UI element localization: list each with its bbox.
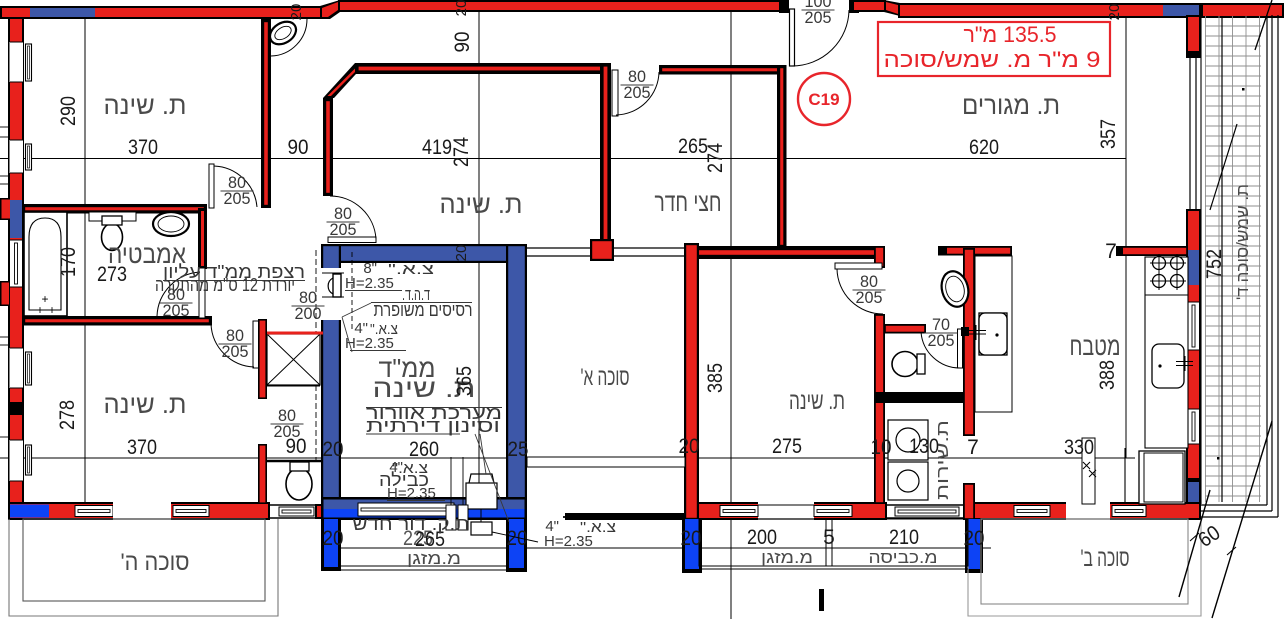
svg-text:620: 620: [969, 136, 999, 159]
svg-text:ת.שירות: ת.שירות: [933, 420, 952, 500]
svg-text:ת.ק. דור חדש: ת.ק. דור חדש: [353, 514, 470, 534]
svg-text:צ.א.": צ.א.": [388, 261, 434, 278]
svg-text:מ.מזגן: מ.מזגן: [761, 548, 813, 567]
svg-text:210: 210: [889, 526, 919, 549]
svg-text:205: 205: [856, 288, 883, 307]
svg-text:90: 90: [288, 136, 309, 159]
svg-text:365: 365: [453, 366, 476, 396]
svg-text:205: 205: [224, 189, 251, 208]
svg-text:יורדת 12 ס"מ מהתקרה: יורדת 12 ס"מ מהתקרה: [155, 275, 295, 295]
svg-text:205: 205: [805, 8, 832, 27]
svg-text:170: 170: [57, 247, 80, 277]
svg-text:סוכה ב': סוכה ב': [1081, 545, 1130, 572]
svg-text:130: 130: [909, 435, 939, 458]
svg-text:20: 20: [453, 0, 470, 16]
svg-text:ת. שמש/סוכה ד': ת. שמש/סוכה ד': [1233, 184, 1252, 300]
svg-text:מ.מזגן: מ.מזגן: [407, 549, 461, 568]
svg-text:205: 205: [330, 220, 357, 239]
svg-text:סוכה ה': סוכה ה': [121, 549, 190, 576]
svg-text:370: 370: [128, 136, 158, 159]
svg-text:7: 7: [967, 436, 979, 459]
svg-text:388: 388: [1096, 360, 1119, 390]
svg-text:20: 20: [681, 527, 702, 550]
svg-text:260: 260: [409, 438, 439, 461]
svg-text:278: 278: [56, 400, 79, 430]
svg-text:330: 330: [1064, 436, 1094, 459]
svg-text:20: 20: [323, 527, 344, 550]
svg-text:752: 752: [1203, 249, 1226, 279]
svg-text:290: 290: [57, 96, 80, 126]
svg-text:205: 205: [928, 331, 955, 350]
svg-text:273: 273: [97, 263, 127, 286]
svg-text:ת. שינה: ת. שינה: [789, 388, 845, 415]
svg-text:ת. מגורים: ת. מגורים: [962, 90, 1060, 120]
svg-text:274: 274: [704, 143, 727, 173]
svg-text:H=2.35: H=2.35: [544, 533, 593, 550]
svg-text:200: 200: [295, 304, 322, 323]
svg-text:H=2.35: H=2.35: [387, 485, 436, 502]
svg-text:20: 20: [1106, 4, 1123, 21]
svg-text:מ.כביסה: מ.כביסה: [869, 548, 938, 567]
svg-text:90: 90: [451, 32, 474, 53]
svg-text:H=2.35: H=2.35: [345, 335, 394, 352]
svg-text:419: 419: [422, 136, 452, 159]
svg-text:200: 200: [747, 526, 777, 549]
svg-text:+: +: [48, 303, 55, 317]
svg-text:9 מ"ר מ. שמש/סוכה: 9 מ"ר מ. שמש/סוכה: [884, 47, 1101, 72]
svg-text:90: 90: [286, 435, 307, 458]
svg-text:+: +: [36, 303, 43, 317]
svg-text:5: 5: [823, 526, 835, 549]
svg-text:מטבח: מטבח: [1070, 331, 1121, 361]
svg-text:סוכה א': סוכה א': [581, 364, 630, 391]
svg-text:7: 7: [1105, 240, 1117, 263]
svg-text:ת. שינה: ת. שינה: [104, 389, 187, 419]
svg-text:20: 20: [679, 435, 700, 458]
svg-text:274: 274: [450, 137, 473, 167]
svg-text:20: 20: [964, 527, 985, 550]
svg-text:C19: C19: [808, 90, 839, 109]
svg-text:חצי חדר: חצי חדר: [655, 187, 722, 217]
svg-text:10: 10: [871, 436, 892, 459]
svg-text:385: 385: [704, 363, 727, 393]
svg-text:205: 205: [624, 83, 651, 102]
svg-text:רסיסים משופרת: רסיסים משופרת: [374, 300, 473, 320]
svg-text:H=2.35: H=2.35: [345, 275, 394, 292]
svg-text:25: 25: [508, 438, 529, 461]
svg-text:370: 370: [127, 436, 157, 459]
svg-text:60: 60: [1194, 521, 1224, 552]
svg-text:20: 20: [323, 438, 344, 461]
svg-text:275: 275: [772, 435, 802, 458]
svg-text:20: 20: [507, 527, 528, 550]
svg-text:357: 357: [1097, 119, 1120, 149]
svg-text:וסינון דירתית: וסינון דירתית: [366, 416, 500, 436]
svg-text:ת. שינה: ת. שינה: [104, 90, 187, 120]
svg-text:135.5 מ"ר: 135.5 מ"ר: [964, 22, 1057, 47]
svg-text:ת. שינה: ת. שינה: [440, 189, 523, 219]
svg-text:20: 20: [453, 245, 470, 262]
svg-text:20: 20: [288, 4, 305, 21]
svg-text:205: 205: [222, 342, 249, 361]
svg-text:205: 205: [163, 301, 190, 320]
